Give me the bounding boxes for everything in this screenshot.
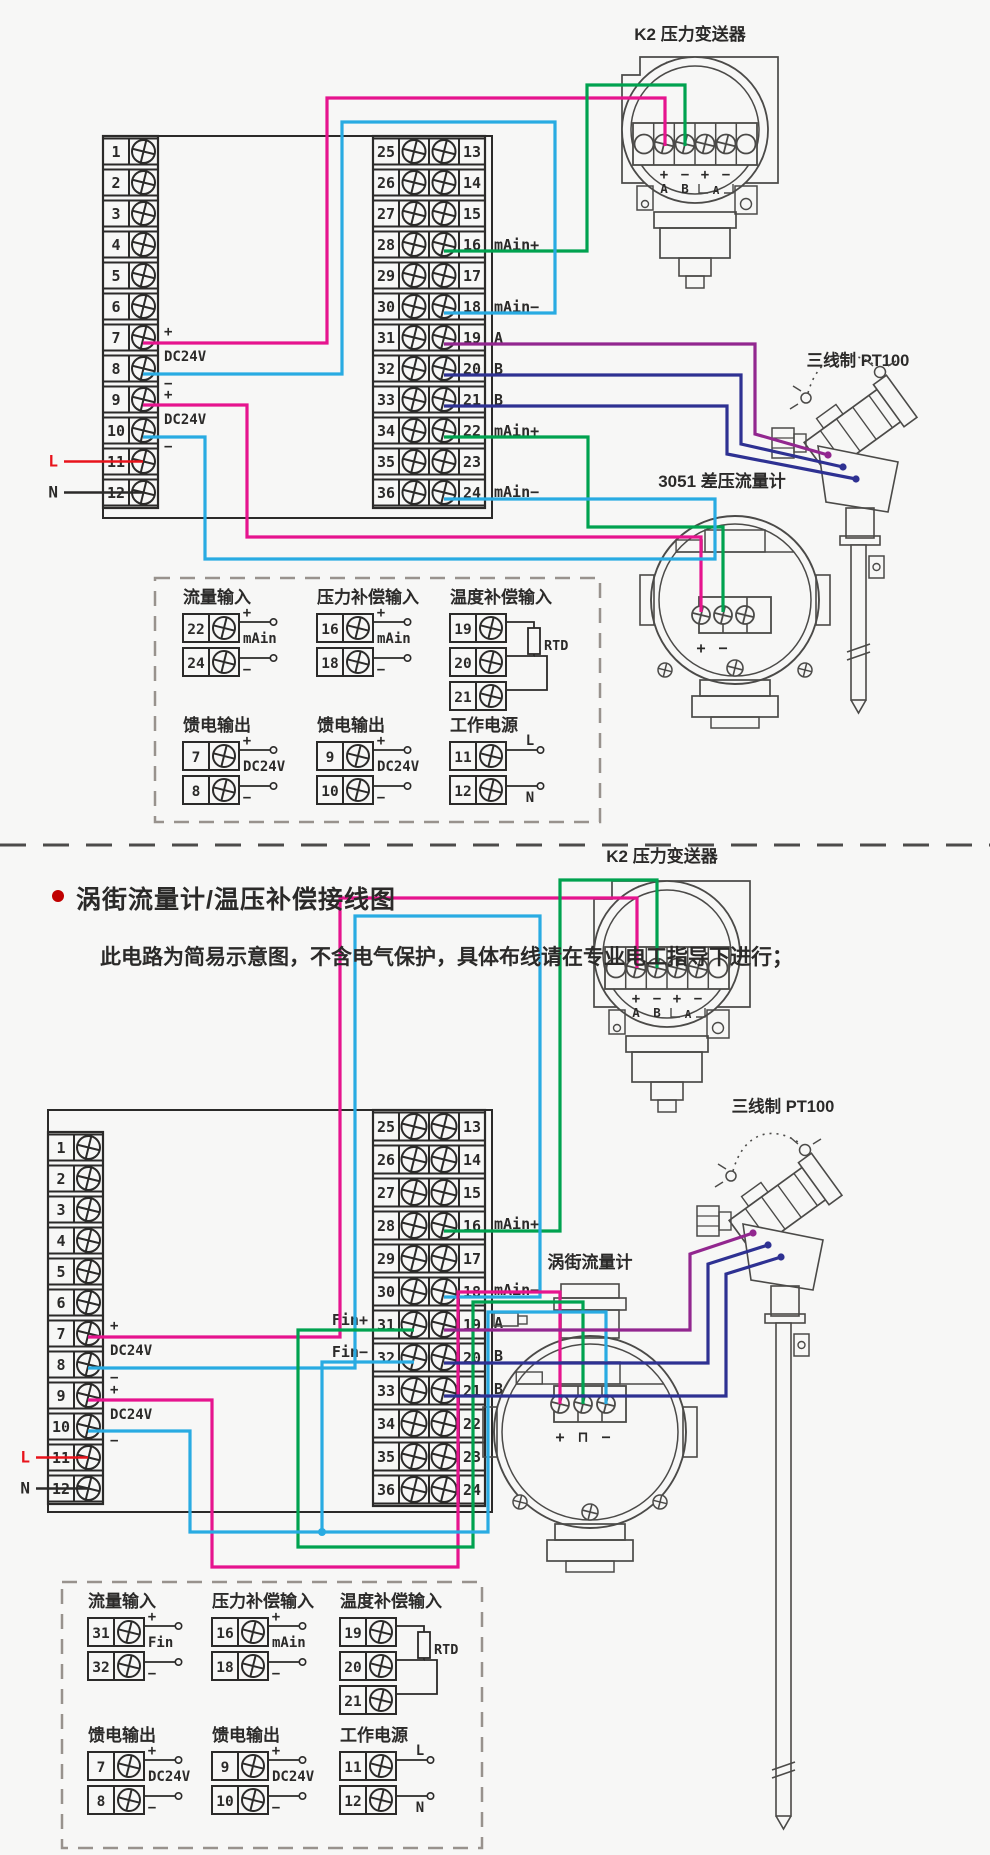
svg-text:−: −: [243, 662, 251, 678]
svg-text:9: 9: [56, 1387, 65, 1405]
svg-text:13: 13: [463, 143, 481, 161]
svg-text:工作电源: 工作电源: [340, 1725, 408, 1745]
svg-text:34: 34: [377, 422, 395, 440]
svg-text:9: 9: [326, 750, 335, 766]
svg-text:2: 2: [111, 174, 120, 192]
svg-text:DC24V: DC24V: [243, 759, 286, 775]
svg-text:15: 15: [463, 205, 481, 223]
svg-text:16: 16: [216, 1626, 233, 1642]
svg-text:RTD: RTD: [434, 1642, 458, 1658]
section-title: 涡街流量计/温压补偿接线图: [76, 880, 396, 916]
svg-text:+: +: [110, 1318, 118, 1334]
svg-text:23: 23: [463, 453, 481, 471]
svg-text:工作电源: 工作电源: [450, 715, 518, 735]
middle-terminal-block-bottom: 2513261427152816291730183119322033213422…: [373, 1110, 485, 1506]
svg-text:32: 32: [92, 1660, 109, 1676]
svg-text:10: 10: [321, 784, 338, 800]
svg-text:A: A: [685, 1008, 692, 1021]
svg-text:+: +: [555, 1428, 564, 1446]
svg-text:10: 10: [107, 422, 125, 440]
svg-text:3: 3: [56, 1201, 65, 1219]
svg-text:29: 29: [377, 267, 395, 285]
svg-text:Fin: Fin: [148, 1635, 173, 1651]
svg-text:DC24V: DC24V: [148, 1769, 191, 1785]
svg-text:温度补偿输入: 温度补偿输入: [450, 587, 552, 607]
svg-text:25: 25: [377, 143, 395, 161]
svg-text:温度补偿输入: 温度补偿输入: [340, 1591, 442, 1611]
svg-text:26: 26: [377, 1151, 395, 1169]
svg-text:4: 4: [56, 1232, 65, 1250]
svg-text:mAin: mAin: [377, 631, 411, 647]
svg-text:12: 12: [454, 784, 471, 800]
svg-text:N: N: [416, 1800, 424, 1816]
svg-text:14: 14: [463, 1151, 481, 1169]
svg-text:30: 30: [377, 298, 395, 316]
svg-text:−: −: [164, 439, 172, 455]
svg-text:K2 压力变送器: K2 压力变送器: [606, 846, 718, 866]
svg-text:8: 8: [97, 1794, 106, 1810]
svg-text:RTD: RTD: [544, 638, 568, 654]
svg-text:1: 1: [111, 143, 120, 161]
svg-text:K2 压力变送器: K2 压力变送器: [634, 24, 746, 44]
svg-text:5: 5: [111, 267, 120, 285]
svg-text:12: 12: [344, 1794, 361, 1810]
svg-text:压力补偿输入: 压力补偿输入: [212, 1591, 314, 1611]
svg-text:24: 24: [187, 656, 205, 672]
svg-text:DC24V: DC24V: [377, 759, 420, 775]
svg-text:+: +: [701, 167, 709, 183]
svg-text:L: L: [526, 733, 534, 749]
svg-text:Fin−: Fin−: [332, 1343, 368, 1361]
svg-text:+: +: [243, 605, 251, 621]
svg-text:A: A: [713, 184, 720, 197]
svg-text:B: B: [653, 1005, 661, 1020]
svg-text:+: +: [110, 1382, 118, 1398]
svg-text:6: 6: [56, 1294, 65, 1312]
svg-text:1: 1: [56, 1139, 65, 1157]
svg-text:压力补偿输入: 压力补偿输入: [317, 587, 419, 607]
svg-text:馈电输出: 馈电输出: [317, 715, 385, 735]
svg-text:L: L: [20, 1448, 30, 1467]
flowmeter-3051: 3051 差压流量计+−: [640, 471, 830, 728]
svg-text:6: 6: [111, 298, 120, 316]
svg-text:+: +: [148, 1609, 156, 1625]
svg-text:5: 5: [56, 1263, 65, 1281]
svg-text:19: 19: [344, 1626, 361, 1642]
svg-text:26: 26: [377, 174, 395, 192]
svg-text:−: −: [110, 1433, 118, 1449]
svg-text:−: −: [377, 790, 385, 806]
svg-text:−: −: [243, 790, 251, 806]
svg-text:13: 13: [463, 1118, 481, 1136]
section-subtitle: 此电路为简易示意图，不含电气保护，具体布线请在专业电工指导下进行；: [100, 941, 793, 971]
svg-text:+: +: [272, 1743, 280, 1759]
svg-text:⊓: ⊓: [578, 1428, 587, 1446]
svg-text:+: +: [377, 733, 385, 749]
wire-blue: [444, 375, 843, 467]
svg-text:19: 19: [454, 622, 471, 638]
svg-text:18: 18: [321, 656, 338, 672]
svg-text:−: −: [272, 1666, 280, 1682]
svg-text:10: 10: [52, 1418, 70, 1436]
k2-transmitter-top: K2 压力变送器+−+−ABA: [622, 24, 778, 288]
svg-text:31: 31: [377, 329, 395, 347]
svg-text:7: 7: [56, 1325, 65, 1343]
svg-text:2: 2: [56, 1170, 65, 1188]
svg-text:30: 30: [377, 1283, 395, 1301]
svg-text:DC24V: DC24V: [110, 1407, 153, 1423]
svg-text:+: +: [164, 387, 172, 403]
svg-text:+: +: [243, 733, 251, 749]
svg-text:10: 10: [216, 1794, 233, 1810]
svg-text:11: 11: [344, 1760, 362, 1776]
svg-text:−: −: [148, 1666, 156, 1682]
svg-text:3051 差压流量计: 3051 差压流量计: [658, 471, 786, 491]
svg-text:三线制 PT100: 三线制 PT100: [732, 1096, 835, 1116]
svg-text:8: 8: [111, 360, 120, 378]
flowmeter-vortex: 涡街流量计+⊓−: [483, 1252, 697, 1572]
svg-text:18: 18: [216, 1660, 233, 1676]
svg-text:L: L: [48, 452, 58, 471]
svg-text:7: 7: [97, 1760, 106, 1776]
svg-text:15: 15: [463, 1184, 481, 1202]
svg-text:32: 32: [377, 1349, 395, 1367]
svg-text:A: A: [632, 1005, 640, 1020]
svg-text:涡街流量计: 涡街流量计: [548, 1252, 633, 1272]
svg-text:29: 29: [377, 1250, 395, 1268]
svg-text:B: B: [681, 181, 689, 196]
svg-text:Fin+: Fin+: [332, 1311, 368, 1329]
svg-text:−: −: [272, 1800, 280, 1816]
svg-text:7: 7: [111, 329, 120, 347]
svg-text:+: +: [164, 324, 172, 340]
svg-text:9: 9: [221, 1760, 230, 1776]
k2-transmitter-bottom: K2 压力变送器+−+−ABA: [594, 846, 750, 1112]
svg-text:N: N: [48, 483, 58, 502]
svg-text:36: 36: [377, 484, 395, 502]
svg-text:35: 35: [377, 453, 395, 471]
svg-text:25: 25: [377, 1118, 395, 1136]
svg-text:mAin: mAin: [272, 1635, 306, 1651]
svg-text:16: 16: [321, 622, 338, 638]
svg-text:−: −: [718, 639, 727, 657]
svg-text:20: 20: [454, 656, 471, 672]
svg-text:−: −: [377, 662, 385, 678]
svg-text:35: 35: [377, 1448, 395, 1466]
svg-text:7: 7: [192, 750, 201, 766]
svg-text:−: −: [601, 1428, 610, 1446]
svg-text:DC24V: DC24V: [164, 412, 207, 428]
middle-terminal-block-top: 2513261427152816291730183119322033213422…: [373, 136, 485, 508]
svg-text:馈电输出: 馈电输出: [183, 715, 251, 735]
svg-text:31: 31: [92, 1626, 110, 1642]
svg-text:DC24V: DC24V: [272, 1769, 315, 1785]
svg-text:−: −: [722, 167, 730, 183]
svg-text:21: 21: [344, 1694, 362, 1710]
svg-text:+: +: [696, 639, 705, 657]
svg-text:8: 8: [56, 1356, 65, 1374]
svg-text:27: 27: [377, 205, 395, 223]
legend-top: 流量输入2224+−mAin压力补偿输入1618+−mAin温度补偿输入1920…: [155, 578, 600, 822]
svg-text:4: 4: [111, 236, 120, 254]
svg-text:27: 27: [377, 1184, 395, 1202]
left-terminal-block-bottom: 123456789101112: [48, 1132, 103, 1504]
bottom-diagram: 1234567891011122513261427152816291730183…: [20, 846, 842, 1829]
svg-text:L: L: [416, 1743, 424, 1759]
svg-text:+: +: [377, 605, 385, 621]
svg-text:33: 33: [377, 1382, 395, 1400]
wiring-diagram-page: 1234567891011122513261427152816291730183…: [0, 0, 990, 1855]
svg-text:流量输入: 流量输入: [183, 587, 251, 607]
svg-text:17: 17: [463, 267, 481, 285]
svg-text:11: 11: [454, 750, 472, 766]
svg-text:馈电输出: 馈电输出: [212, 1725, 280, 1745]
svg-text:+: +: [148, 1743, 156, 1759]
svg-text:流量输入: 流量输入: [88, 1591, 156, 1611]
svg-text:−: −: [148, 1800, 156, 1816]
svg-text:22: 22: [187, 622, 204, 638]
svg-text:mAin: mAin: [243, 631, 277, 647]
svg-text:28: 28: [377, 1217, 395, 1235]
svg-text:N: N: [526, 790, 534, 806]
svg-text:馈电输出: 馈电输出: [88, 1725, 156, 1745]
svg-text:−: −: [694, 991, 702, 1007]
wiring-diagram-canvas: 1234567891011122513261427152816291730183…: [0, 0, 990, 1855]
svg-text:36: 36: [377, 1481, 395, 1499]
svg-text:3: 3: [111, 205, 120, 223]
left-terminal-block-top: 123456789101112: [103, 136, 158, 508]
svg-text:20: 20: [344, 1660, 361, 1676]
svg-text:9: 9: [111, 391, 120, 409]
svg-text:8: 8: [192, 784, 201, 800]
svg-text:14: 14: [463, 174, 481, 192]
svg-text:28: 28: [377, 236, 395, 254]
svg-text:21: 21: [454, 690, 472, 706]
svg-text:33: 33: [377, 391, 395, 409]
svg-text:+: +: [272, 1609, 280, 1625]
legend-bottom: 流量输入3132+−Fin压力补偿输入1618+−mAin温度补偿输入19202…: [62, 1582, 482, 1848]
bullet-icon: [52, 890, 64, 902]
svg-text:17: 17: [463, 1250, 481, 1268]
svg-text:DC24V: DC24V: [164, 349, 207, 365]
svg-text:A: A: [660, 181, 668, 196]
svg-text:DC24V: DC24V: [110, 1343, 153, 1359]
svg-text:N: N: [20, 1479, 30, 1498]
svg-text:32: 32: [377, 360, 395, 378]
pt100-sensor-bottom: 三线制 PT100: [697, 1096, 842, 1829]
svg-text:34: 34: [377, 1415, 395, 1433]
svg-text:+: +: [673, 991, 681, 1007]
